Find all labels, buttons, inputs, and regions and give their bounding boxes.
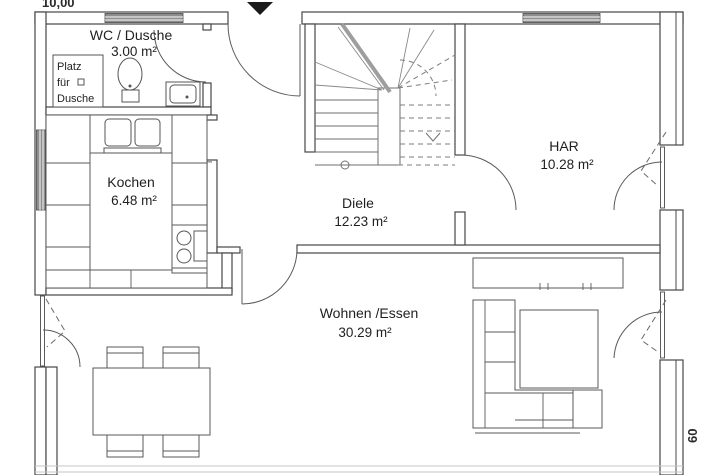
entrance-arrow-icon [247,2,273,15]
dining-chair [107,347,143,368]
toilet-icon [118,58,142,102]
har-ext-door-glazing [661,147,665,208]
floor-plan: WC / Dusche 3.00 m² Kochen 6.48 m² Diele… [0,0,715,475]
window-icon [105,14,183,23]
area-label-wc: 3.00 m² [111,44,157,59]
wohnen-ext-door-arc [614,312,662,358]
kitchen-wall-jog [217,247,240,253]
room-label-har: HAR [549,138,579,154]
right-wall-upper [660,12,683,145]
top-wall-right [302,12,683,24]
shower-label-line1: Platz [57,61,81,73]
stair-east-wall [455,24,465,155]
har-west-wall-stub [455,212,465,245]
staircase [315,24,455,169]
window-top-right [523,14,600,23]
stair-direction-arrow-icon [426,133,440,141]
wc-east-wall-stub-bottom [203,83,211,107]
room-label-diele: Diele [342,195,374,211]
stair-winder-line-dashed [398,80,452,88]
dimension-label-right: 60 [685,429,700,443]
wc-east-wall-stub-top [203,24,211,30]
stove-icon [172,225,207,268]
terrace-door-glazing [41,296,45,366]
dimension-label-top: 10,00 [42,0,75,10]
kitchen-counter-left [46,115,90,273]
area-label-kochen: 6.48 m² [111,193,157,208]
dining-chair [163,435,199,457]
shower-label-line2: für [57,77,70,89]
stair-walkline-arc [400,60,436,96]
area-label-diele: 12.23 m² [334,214,388,229]
wc-south-wall [46,107,211,115]
window-icon [523,14,600,23]
dining-chair [107,435,143,457]
right-wall-lower [660,360,683,475]
shower-label-line3: Dusche [57,93,94,105]
stair-cut-line [342,24,390,92]
kitchen-east-wall [207,160,217,253]
dining-table [93,368,210,435]
window-icon [37,130,46,210]
sofa-end-seat [573,390,602,428]
sideboard [473,258,623,290]
terrace-door-arc [43,330,80,367]
window-left-kitchen [37,130,46,210]
entrance-door-arc [228,24,300,96]
har-ext-door-arc [614,162,662,210]
area-label-har: 10.28 m² [540,157,594,172]
wohnen-ext-door-glazing [661,292,665,358]
shower-drain-icon [78,79,84,85]
dining-chair [163,347,199,368]
kitchen-east-wall-stub [207,115,217,120]
left-wall-lower [35,367,46,475]
kitchen-south-wall [46,288,232,295]
stair-spine [378,88,400,165]
washbasin-icon [166,82,200,106]
area-label-wohnen: 30.29 m² [338,325,392,340]
window-top-left [105,14,183,23]
har-door-arc [461,155,516,210]
room-label-kochen: Kochen [107,174,154,190]
room-label-wc: WC / Dusche [90,27,173,43]
coffee-table [520,310,598,388]
kitchen-se-wall [222,253,232,292]
right-wall-middle [660,210,683,290]
terrace-door-tilt-lines [46,299,65,347]
room-label-wohnen: Wohnen /Essen [320,305,419,321]
diele-wohnen-wall [297,245,660,253]
stair-winder-line [338,27,384,90]
left-wall-lower-inner [46,367,57,475]
wohnen-door-arc [242,249,297,304]
stair-west-wall [305,24,315,152]
